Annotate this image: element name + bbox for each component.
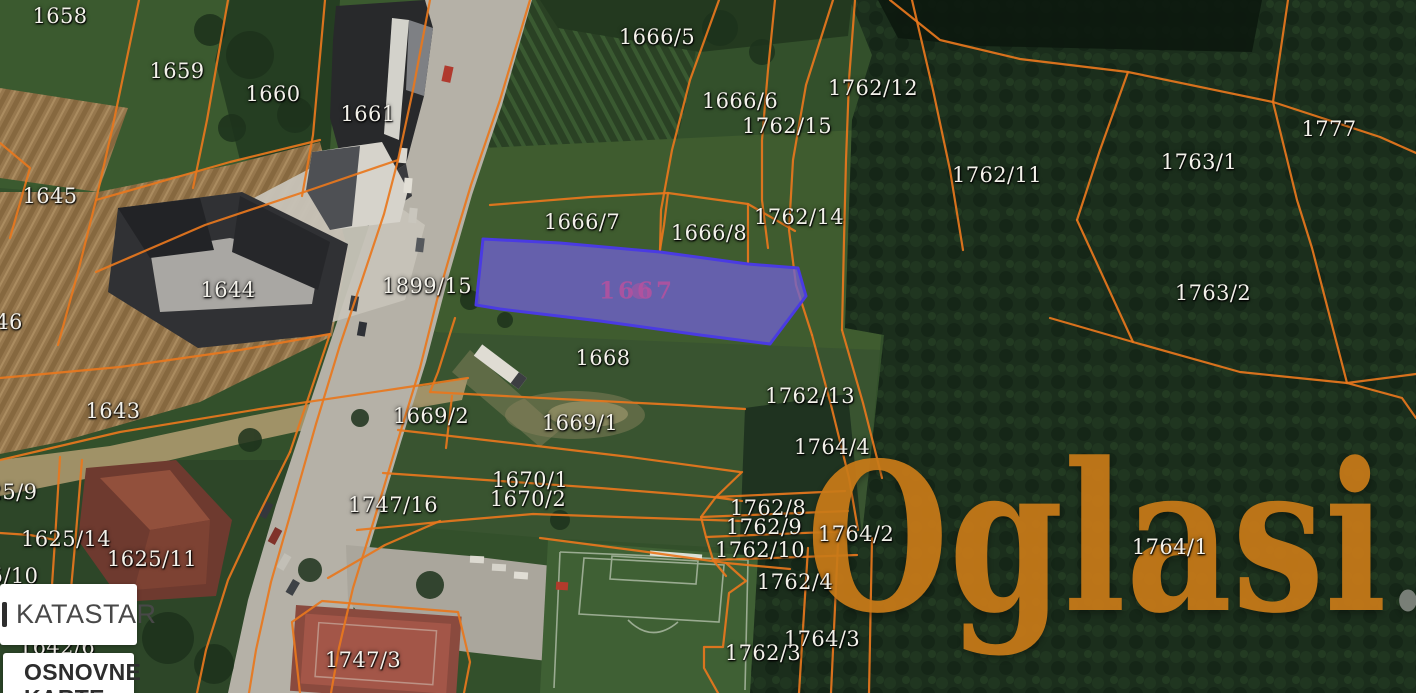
parcel-boundary-line — [0, 143, 30, 238]
parcel-boundary-line — [197, 452, 290, 693]
parcel-boundary-line — [540, 538, 790, 569]
parcel-boundary-line — [842, 0, 855, 330]
parcel-boundaries — [0, 0, 1416, 693]
parcel-boundary-line — [446, 396, 452, 448]
highlighted-parcel-layer — [476, 239, 806, 344]
parcel-boundary-line — [398, 430, 740, 472]
basemap-label-line2: KARTE — [24, 685, 134, 693]
parcel-boundary-line — [869, 538, 872, 693]
parcel-boundary-line — [799, 548, 808, 693]
parcel-boundary-line — [430, 392, 745, 409]
parcel-boundary-line — [331, 0, 530, 693]
parcel-boundary-line — [328, 521, 440, 578]
parcel-boundary-line — [1273, 102, 1416, 153]
parcel-boundary-line — [292, 601, 470, 693]
cadastral-overlay — [0, 0, 1416, 693]
parcel-boundary-line — [1077, 72, 1128, 220]
highlighted-parcel-marker — [631, 283, 649, 299]
parcel-boundary-line — [1077, 220, 1133, 342]
parcel-boundary-line — [249, 0, 430, 693]
parcel-boundary-line — [842, 330, 882, 478]
parcel-boundary-line — [96, 160, 398, 272]
parcel-boundary-line — [357, 514, 742, 530]
parcel-boundary-line — [1347, 374, 1416, 383]
parcel-boundary-line — [1347, 383, 1416, 418]
parcel-boundary-line — [890, 0, 1273, 102]
parcel-boundary-line — [96, 140, 320, 200]
katastar-label: KATASTAR — [16, 599, 157, 630]
parcel-boundary-line — [193, 0, 228, 188]
parcel-boundary-line — [0, 334, 330, 378]
parcel-boundary-line — [713, 555, 857, 560]
parcel-boundary-line — [716, 491, 845, 497]
parcel-boundary-line — [831, 543, 838, 693]
katastar-layer-button[interactable]: KATASTAR — [0, 584, 137, 645]
parcel-boundary-line — [290, 334, 330, 452]
parcel-boundary-line — [0, 378, 468, 460]
parcel-boundary-line — [58, 0, 139, 345]
basemap-label-line1: OSNOVNE — [24, 659, 134, 685]
basemap-layer-button[interactable]: OSNOVNE KARTE — [3, 653, 134, 693]
parcel-boundary-line — [701, 511, 848, 517]
parcel-boundary-line — [490, 193, 795, 231]
parcel-boundary-line — [302, 0, 325, 196]
parcel-boundary-line — [0, 533, 55, 540]
parcel-boundary-line — [762, 0, 775, 248]
map-viewport[interactable]: Oglasi.rs 165816591660166116454616441899… — [0, 0, 1416, 693]
parcel-boundary-line — [704, 563, 746, 693]
parcel-boundary-line — [706, 531, 852, 537]
parcel-boundary-line — [660, 0, 719, 250]
parcel-boundary-line — [1273, 0, 1288, 102]
parcel-boundary-line — [1050, 318, 1347, 383]
parcel-boundary-line — [1273, 102, 1347, 383]
layer-toggle-icon — [2, 602, 7, 627]
parcel-boundary-line — [383, 473, 742, 501]
